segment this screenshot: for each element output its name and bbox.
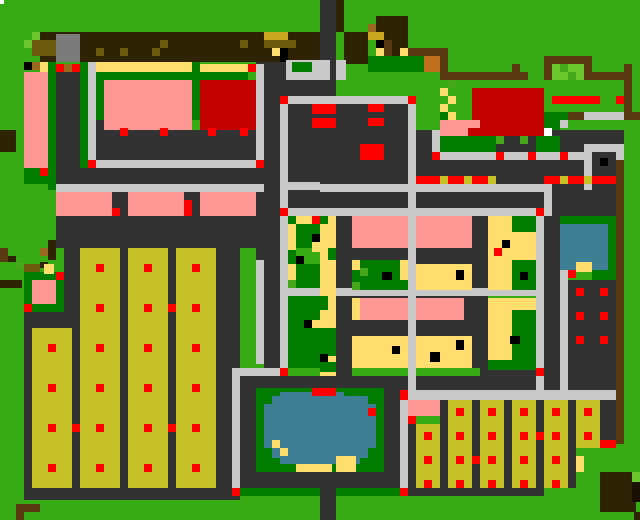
red-roof-tile [480,88,544,136]
black-tile [320,354,328,362]
game-world-map[interactable] [0,0,640,520]
pink-roof-tile [32,280,56,304]
gold-tile [264,32,288,40]
water-tile [264,404,376,448]
brown-dark-tile [600,472,636,512]
red-marker-tile [528,152,536,160]
pale-yellow-tile [440,104,448,112]
red-marker-tile [120,128,128,136]
brown-wall-tile [440,48,448,80]
brown-wall-tile [384,40,392,56]
crop-field-tile [488,176,496,184]
road-tile [24,328,32,500]
brown-wall-tile [616,390,624,444]
crop-field-tile [560,176,568,184]
hedge-tile [296,264,320,288]
sidewalk-tile [584,152,592,190]
red-marker-tile [56,64,64,72]
water-tile [272,448,280,456]
red-marker-tile [312,104,336,114]
red-roof-tile [472,88,480,120]
sidewalk-tile [288,182,320,190]
sidewalk-tile [560,268,568,390]
soil-tan-tile [64,64,72,72]
pink-roof-tile [128,192,184,216]
hedge-tile [536,136,560,152]
grass-accent-tile [560,64,568,72]
hedge-tile [288,216,296,224]
black-tile [382,272,392,280]
red-marker-tile [112,208,120,216]
pink-roof-tile [408,400,440,416]
red-marker-tile [520,456,528,464]
sidewalk-tile [584,112,624,120]
black-tile [312,234,320,242]
road-tile [32,488,216,500]
black-tile [392,346,400,354]
road-tile [256,168,264,260]
soil-tan-tile [32,62,40,70]
road-tile [480,216,488,376]
sidewalk-tile [616,144,624,160]
red-marker-tile [312,388,336,396]
black-tile [510,336,520,344]
red-marker-tile [544,176,616,184]
crop-field-tile [80,248,120,488]
black-tile [304,320,312,328]
pale-yellow-tile [312,242,320,252]
hedge-tile [292,62,312,72]
road-tile [408,488,544,496]
brown-wall-tile [512,64,520,72]
red-marker-tile [584,408,592,416]
red-marker-tile [472,456,480,464]
brown-dark-tile [0,280,22,288]
road-tile [472,336,480,368]
road-tile [472,216,480,260]
hedge-tile [104,72,192,80]
red-marker-tile [96,384,104,392]
red-roof-tile [200,80,256,130]
hedge-tile [288,250,296,264]
red-marker-tile [96,304,104,312]
sidewalk-tile [56,184,264,192]
brown-dark-tile [344,32,368,64]
road-tile [320,192,544,208]
red-marker-tile [536,368,544,376]
water-tile [600,232,608,268]
red-marker-tile [400,390,408,400]
brown-wall-tile [0,248,8,262]
red-marker-tile [424,456,432,464]
red-marker-tile [488,480,496,488]
sidewalk-tile [320,184,544,192]
olive-tile [24,264,40,272]
pink-roof-tile [56,192,112,216]
road-tile [168,248,176,488]
road-tile [320,488,336,520]
road-tile [320,0,336,96]
sidewalk-tile [480,152,496,160]
red-marker-tile [576,336,584,344]
sidewalk-tile [408,104,416,390]
brown-dark-tile [0,130,16,152]
red-marker-tile [192,384,200,392]
road-tile [600,400,616,444]
black-tile [430,352,440,362]
pale-yellow-tile [272,48,280,56]
sidewalk-tile [544,184,552,216]
soil-tan-tile [368,24,376,32]
hedge-tile [328,248,336,260]
hedge-tile [480,136,496,152]
hedge-tile [544,112,568,120]
red-marker-tile [520,480,528,488]
olive-tile [120,48,128,56]
hedge-tile [336,488,400,496]
pale-yellow-tile [288,224,296,250]
brown-wall-tile [568,112,584,120]
pale-yellow-tile [352,260,360,270]
red-marker-tile [48,464,56,472]
grass-light-tile [32,32,40,40]
red-marker-tile [24,304,32,312]
red-marker-tile [408,96,416,104]
black-tile [456,340,464,350]
red-marker-tile [184,200,192,216]
black-tile [376,40,384,48]
red-marker-tile [48,384,56,392]
sidewalk-tile [504,152,528,160]
sidewalk-tile [560,120,568,128]
red-marker-tile [552,96,600,104]
pale-yellow-tile [400,260,408,280]
road-tile [24,312,64,328]
red-marker-tile [424,480,432,488]
grass-accent-tile [16,262,24,270]
red-marker-tile [560,152,568,160]
road-tile [504,400,512,496]
road-tile [440,400,448,488]
sidewalk-tile [256,64,264,168]
sidewalk-tile [440,152,480,160]
hedge-tile [512,216,536,232]
olive-tile [160,40,168,48]
pale-yellow-tile [272,440,280,448]
pale-yellow-tile [352,298,360,320]
red-marker-tile [456,480,464,488]
crop-field-tile [440,176,448,184]
brown-wall-tile [16,504,40,512]
red-marker-tile [232,488,240,496]
red-marker-tile [488,456,496,464]
red-marker-tile [400,488,408,496]
grass-accent-tile [288,280,296,288]
black-tile [600,158,608,166]
black-tile [502,240,510,248]
red-marker-tile [48,424,56,432]
red-marker-tile [144,344,152,352]
sidewalk-tile [232,376,240,488]
grass-accent-tile [496,136,504,144]
red-marker-tile [576,288,584,296]
crop-field-tile [128,248,168,488]
red-marker-tile [584,432,592,440]
black-tile [456,270,464,280]
brown-wall-tile [616,152,624,260]
red-marker-tile [96,424,104,432]
crop-field-tile [464,176,472,184]
brown-wall-tile [592,72,632,80]
road-tile [472,400,480,488]
red-marker-tile [488,408,496,416]
olive-tile [264,40,296,48]
sidewalk-tile [336,60,346,80]
red-marker-tile [360,144,384,160]
red-marker-tile [456,456,464,464]
olive-tile [96,48,104,56]
red-marker-tile [88,160,96,168]
red-marker-tile [552,480,560,488]
pale-yellow-tile [448,96,456,104]
pale-yellow-tile [312,320,320,328]
red-marker-tile [536,208,544,216]
brown-dark-tile [634,512,640,520]
road-tile [288,130,320,182]
red-marker-tile [192,304,200,312]
road-tile [496,176,544,184]
red-marker-tile [168,424,176,432]
red-marker-tile [552,408,560,416]
hedge-tile [80,62,88,168]
road-tile [384,392,400,488]
red-marker-tile [616,96,624,104]
white-tile [544,128,552,136]
red-marker-tile [256,160,264,168]
white-tile [0,0,4,4]
red-roof-tile [468,128,480,136]
red-marker-tile [312,216,320,224]
hedge-tile [368,56,424,72]
olive-tile [240,40,248,48]
pale-yellow-tile [400,48,408,56]
red-marker-tile [144,424,152,432]
hedge-tile [608,232,616,270]
red-marker-tile [432,152,440,160]
road-tile [536,400,544,496]
red-marker-tile [40,168,48,176]
olive-tile [152,48,160,56]
grass-accent-tile [360,268,368,276]
red-marker-tile [368,408,376,416]
red-marker-tile [144,304,152,312]
olive-tile [32,40,56,56]
red-marker-tile [56,272,64,280]
crop-field-tile [584,176,592,184]
brown-wall-tile [544,56,592,64]
red-marker-tile [496,152,504,160]
pale-yellow-tile [448,112,456,120]
road-tile [408,416,416,488]
red-marker-tile [240,128,248,136]
red-marker-tile [208,128,216,136]
black-tile [296,256,304,264]
grass-light-tile [632,472,640,482]
pale-yellow-tile [336,456,356,472]
grass-tile [48,190,56,240]
brown-wall-tile [624,112,640,120]
sidewalk-tile [280,96,288,376]
grass-accent-tile [520,136,528,144]
red-marker-tile [600,312,608,320]
sidewalk-tile [320,208,536,216]
pale-yellow-tile [576,262,592,272]
red-marker-tile [600,288,608,296]
red-marker-tile [552,456,560,464]
hedge-tile [320,216,328,224]
sidewalk-tile [256,260,264,364]
grass-light-tile [24,40,32,48]
brown-dark-tile [48,240,56,260]
pink-roof-tile [416,298,464,320]
sidewalk-tile [432,130,440,152]
hedge-tile [488,360,536,370]
red-marker-tile [312,118,336,128]
brown-dark-tile [336,0,344,32]
red-marker-tile [520,432,528,440]
sidewalk-tile [536,152,560,160]
red-marker-tile [424,432,432,440]
hedge-tile [96,72,104,120]
red-marker-tile [72,424,80,432]
pale-yellow-tile [280,448,288,456]
red-marker-tile [280,368,288,376]
red-marker-tile [144,464,152,472]
red-marker-tile [192,344,200,352]
pale-yellow-tile [44,264,54,274]
red-marker-tile [160,128,168,136]
pink-roof-tile [352,216,408,248]
red-marker-tile [488,432,496,440]
red-marker-tile [494,248,502,256]
pale-yellow-tile [440,88,448,96]
red-marker-tile [96,344,104,352]
grass-accent-tile [352,282,360,290]
red-marker-tile [48,344,56,352]
red-marker-tile [600,336,608,344]
red-marker-tile [600,440,616,448]
crop-field-tile [176,248,216,488]
red-marker-tile [96,264,104,272]
pink-roof-tile [200,192,256,216]
sidewalk-tile [288,208,320,216]
red-marker-tile [72,64,80,72]
red-marker-tile [192,424,200,432]
pale-yellow-tile [40,62,48,72]
red-marker-tile [536,432,544,440]
red-marker-tile [144,384,152,392]
road-tile [568,400,576,488]
red-marker-tile [568,270,576,278]
pale-yellow-tile [296,464,332,472]
road-tile [216,472,400,488]
road-tile [288,190,320,208]
pink-roof-tile [416,216,472,248]
copper-tile [424,56,440,72]
sidewalk-tile [568,152,584,160]
red-marker-tile [520,408,528,416]
hedge-tile [240,488,320,496]
pale-yellow-tile [96,62,192,72]
road-tile [120,248,128,488]
pink-roof-tile [104,80,192,130]
red-marker-tile [280,96,288,104]
road-tile [240,376,256,472]
red-marker-tile [168,304,176,312]
pink-roof-tile [360,298,408,320]
road-tile [544,216,560,392]
brown-dark-tile [8,256,16,262]
red-marker-tile [552,432,560,440]
hedge-tile [440,112,448,120]
brown-black-tile [632,482,640,502]
hedge-tile [320,328,336,356]
road-tile [568,280,616,390]
hedge-tile [560,216,616,224]
brown-wall-tile [448,72,528,80]
sidewalk-tile [536,216,544,390]
sidewalk-tile [400,400,408,488]
pink-roof-tile [24,72,48,168]
brown-wall-tile [544,64,552,80]
sidewalk-tile [88,62,96,168]
grass-accent-tile [448,80,456,88]
brown-wall-tile [616,260,624,390]
red-marker-tile [368,118,384,126]
sidewalk-tile [400,390,616,400]
sidewalk-tile [288,96,408,104]
red-marker-tile [192,264,200,272]
road-tile [264,130,280,392]
red-marker-tile [368,104,384,112]
gold-tile [368,32,384,40]
red-marker-tile [192,464,200,472]
hedge-tile [288,296,320,368]
pale-yellow-tile [576,456,584,472]
pale-yellow-tile [288,264,296,280]
hedge-tile [320,362,336,372]
red-marker-tile [280,208,288,216]
gray-roof-tile [56,34,80,62]
hedge-tile [48,62,56,190]
red-marker-tile [144,264,152,272]
sidewalk-tile [96,160,256,168]
brown-wall-tile [16,512,24,520]
red-marker-tile [408,416,416,424]
red-marker-tile [576,312,584,320]
red-marker-tile [248,64,256,72]
grass-accent-tile [568,72,576,80]
hedge-tile [200,72,248,80]
red-marker-tile [456,408,464,416]
black-tile [520,272,528,280]
black-tile [24,62,32,70]
sidewalk-tile [232,368,280,376]
red-marker-tile [456,432,464,440]
hedge-tile [320,296,328,310]
hedge-tile [440,136,480,152]
soil-tan-tile [40,248,48,256]
